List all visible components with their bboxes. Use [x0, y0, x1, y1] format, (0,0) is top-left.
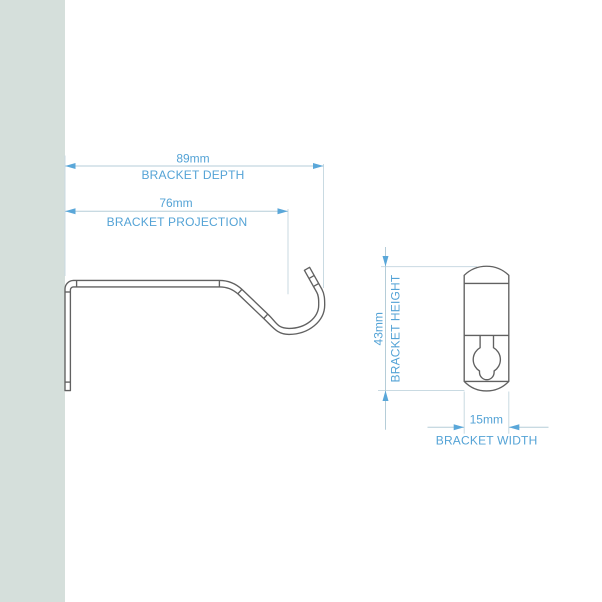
svg-text:BRACKET HEIGHT: BRACKET HEIGHT: [389, 274, 403, 382]
svg-text:43mm: 43mm: [371, 312, 385, 345]
svg-text:BRACKET DEPTH: BRACKET DEPTH: [141, 168, 244, 182]
svg-text:BRACKET PROJECTION: BRACKET PROJECTION: [107, 215, 248, 229]
svg-text:15mm: 15mm: [470, 413, 503, 427]
svg-text:76mm: 76mm: [159, 196, 192, 210]
svg-text:89mm: 89mm: [176, 151, 209, 165]
svg-text:BRACKET WIDTH: BRACKET WIDTH: [436, 434, 538, 448]
